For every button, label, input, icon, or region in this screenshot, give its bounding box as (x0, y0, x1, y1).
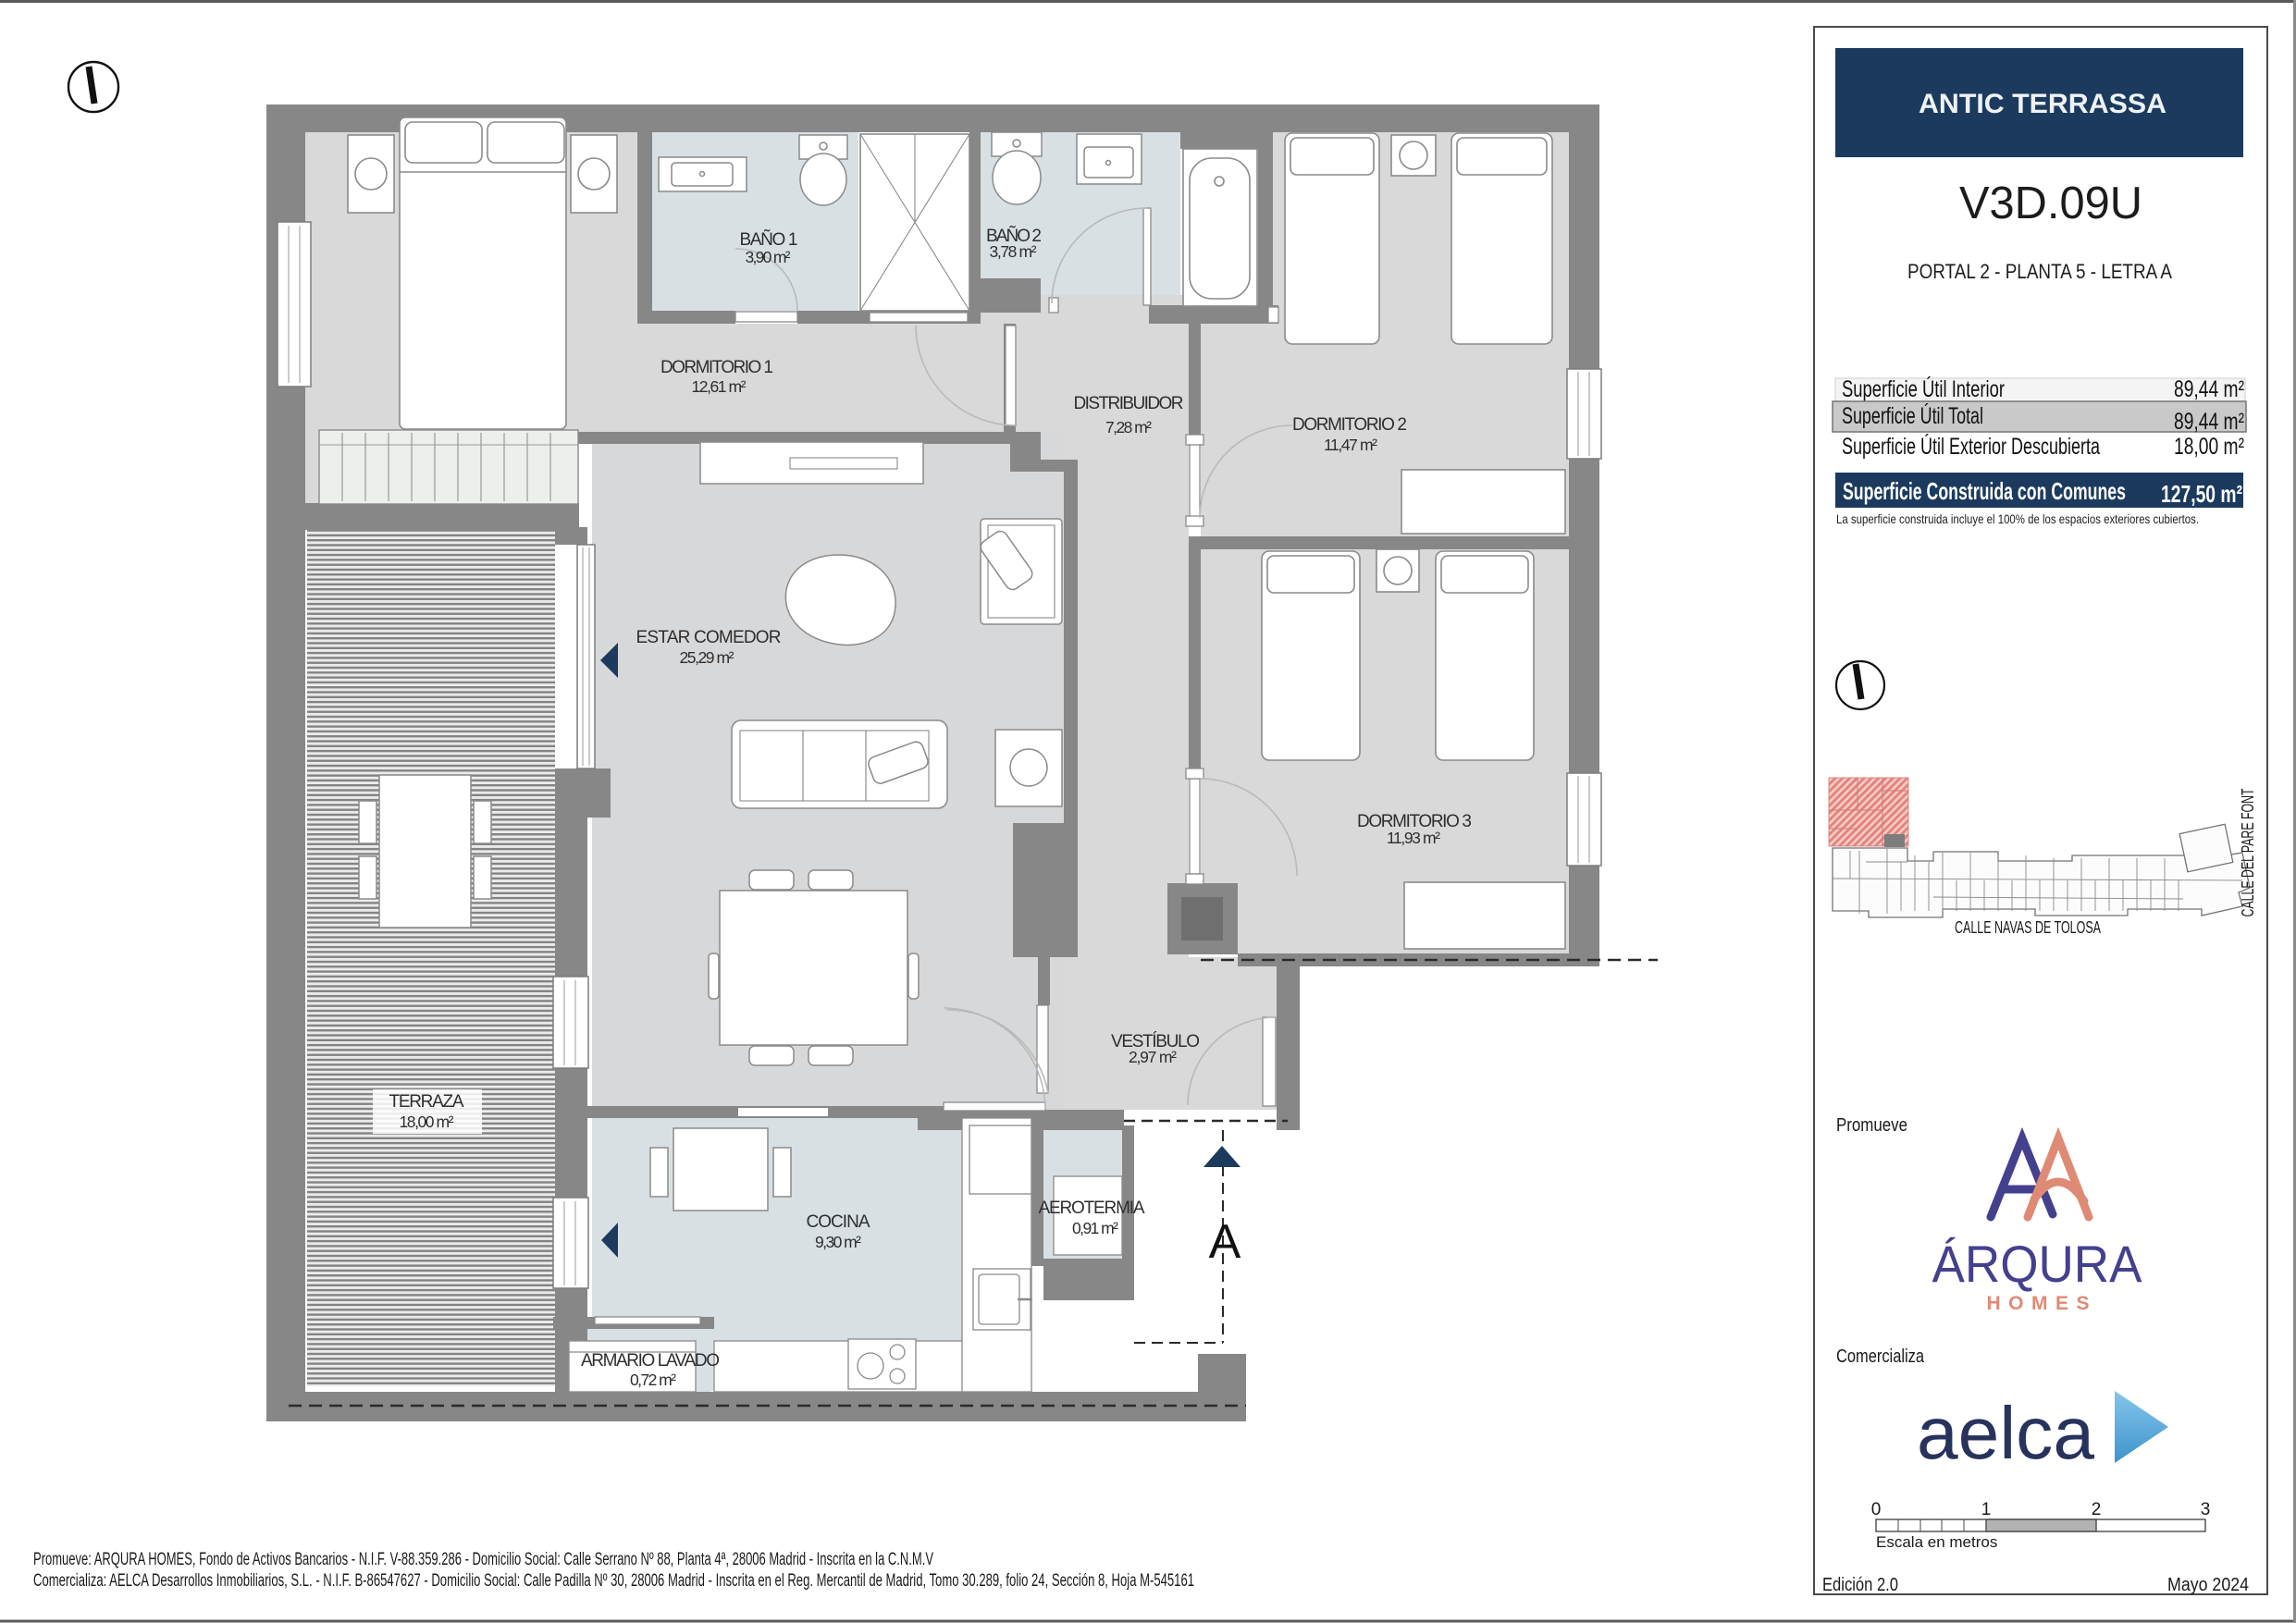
svg-text:7,28 m²: 7,28 m² (1105, 418, 1152, 436)
svg-text:0: 0 (1871, 1500, 1882, 1519)
svg-text:Superficie Útil Total: Superficie Útil Total (1842, 402, 1983, 429)
svg-text:CALLE NAVAS DE TOLOSA: CALLE NAVAS DE TOLOSA (1955, 918, 2101, 937)
svg-text:3,78 m²: 3,78 m² (990, 242, 1037, 261)
svg-text:127,50 m²: 127,50 m² (2161, 480, 2242, 508)
svg-text:2: 2 (2092, 1500, 2102, 1519)
svg-text:ÁRQURA: ÁRQURA (1932, 1235, 2143, 1293)
svg-text:12,61 m²: 12,61 m² (692, 377, 747, 396)
svg-text:89,44 m²: 89,44 m² (2174, 376, 2244, 402)
svg-text:ARMARIO LAVADO: ARMARIO LAVADO (581, 1351, 720, 1371)
svg-text:1: 1 (1981, 1500, 1992, 1519)
svg-text:TERRAZA: TERRAZA (389, 1092, 464, 1112)
svg-text:PORTAL 2 - PLANTA 5 - LETRA A: PORTAL 2 - PLANTA 5 - LETRA A (1907, 260, 2172, 283)
svg-text:3,90 m²: 3,90 m² (746, 248, 791, 266)
svg-text:BAÑO 1: BAÑO 1 (740, 229, 798, 250)
svg-text:2,97 m²: 2,97 m² (1129, 1048, 1177, 1066)
svg-text:Superficie Construida con Comu: Superficie Construida con Comunes (1843, 477, 2126, 505)
svg-text:CALLE DEL PARE FONT: CALLE DEL PARE FONT (2239, 789, 2257, 917)
svg-text:Superficie Útil Interior: Superficie Útil Interior (1842, 375, 2005, 402)
svg-text:V3D.09U: V3D.09U (1959, 178, 2142, 228)
svg-text:11,93 m²: 11,93 m² (1387, 829, 1440, 847)
svg-text:aelca: aelca (1917, 1392, 2095, 1474)
svg-text:25,29 m²: 25,29 m² (680, 648, 734, 667)
svg-text:Escala en metros: Escala en metros (1876, 1533, 1997, 1551)
svg-text:La superficie construida inclu: La superficie construida incluye el 100%… (1836, 511, 2199, 526)
svg-text:DISTRIBUIDOR: DISTRIBUIDOR (1074, 394, 1184, 413)
svg-text:Promueve: Promueve (1836, 1115, 1907, 1136)
svg-text:18,00 m²: 18,00 m² (2174, 434, 2244, 460)
svg-text:Edición 2.0: Edición 2.0 (1822, 1575, 1898, 1595)
svg-text:COCINA: COCINA (807, 1212, 870, 1232)
svg-text:0,91 m²: 0,91 m² (1072, 1219, 1118, 1237)
svg-text:3: 3 (2201, 1500, 2211, 1519)
svg-text:Superficie Útil Exterior Descu: Superficie Útil Exterior Descubierta (1842, 433, 2100, 460)
svg-text:89,44 m²: 89,44 m² (2174, 409, 2244, 435)
svg-text:Mayo 2024: Mayo 2024 (2167, 1575, 2249, 1595)
svg-text:DORMITORIO 2: DORMITORIO 2 (1292, 415, 1407, 435)
svg-text:Comercializa: Comercializa (1836, 1346, 1925, 1367)
svg-text:11,47 m²: 11,47 m² (1324, 436, 1377, 454)
svg-text:DORMITORIO 1: DORMITORIO 1 (660, 358, 773, 377)
svg-text:0,72 m²: 0,72 m² (630, 1371, 676, 1389)
svg-text:Promueve: ARQURA HOMES, Fondo: Promueve: ARQURA HOMES, Fondo de Activos… (33, 1550, 933, 1569)
svg-text:18,00 m²: 18,00 m² (400, 1113, 454, 1131)
svg-text:AEROTERMIA: AEROTERMIA (1039, 1199, 1145, 1218)
svg-text:Comercializa: AELCA Desarrollo: Comercializa: AELCA Desarrollos Inmobili… (33, 1571, 1194, 1591)
svg-text:9,30 m²: 9,30 m² (815, 1233, 861, 1251)
svg-text:ANTIC TERRASSA: ANTIC TERRASSA (1919, 89, 2166, 119)
svg-text:A: A (1209, 1215, 1241, 1269)
svg-text:ESTAR COMEDOR: ESTAR COMEDOR (636, 628, 782, 647)
